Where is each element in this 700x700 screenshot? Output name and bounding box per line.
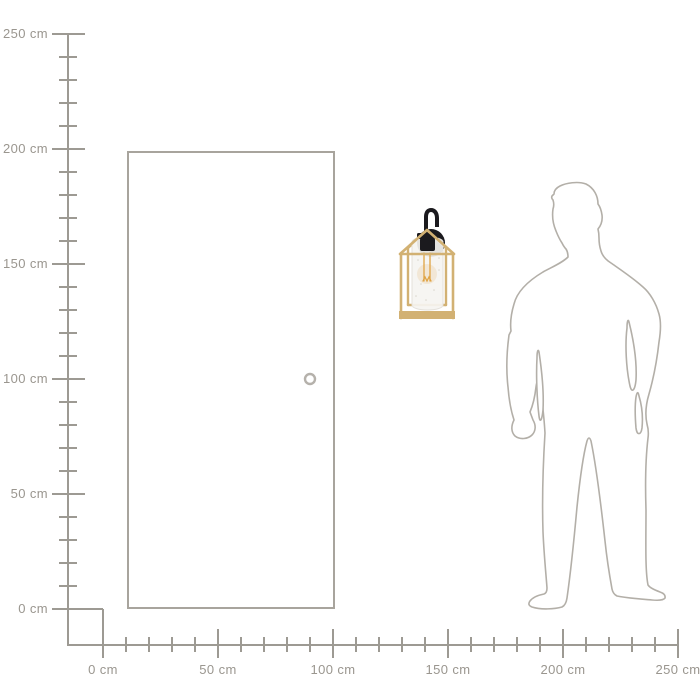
lamp-hook-arm: [424, 208, 439, 232]
vertical-label-0cm: 0 cm: [0, 600, 48, 618]
horizontal-label-0cm: 0 cm: [68, 661, 138, 679]
door: [128, 152, 334, 608]
vertical-label-100cm: 100 cm: [0, 370, 48, 388]
doorknob-ring: [305, 374, 315, 384]
human-outline: [507, 183, 665, 609]
horizontal-label-150cm: 150 cm: [413, 661, 483, 679]
horizontal-label-250cm: 250 cm: [643, 661, 700, 679]
wall-lantern-lamp: [399, 208, 455, 319]
vertical-label-200cm: 200 cm: [0, 140, 48, 158]
horizontal-label-200cm: 200 cm: [528, 661, 598, 679]
horizontal-label-50cm: 50 cm: [183, 661, 253, 679]
human-silhouette: [507, 183, 665, 609]
vertical-label-150cm: 150 cm: [0, 255, 48, 273]
vertical-label-50cm: 50 cm: [0, 485, 48, 503]
door-outline: [128, 152, 334, 608]
diagram-canvas: [0, 0, 700, 700]
horizontal-major-ticks: [103, 609, 678, 658]
lamp-bottom-band: [399, 311, 455, 319]
size-comparison-diagram: 250 cm 200 cm 150 cm 100 cm 50 cm 0 cm 0…: [0, 0, 700, 700]
vertical-major-ticks: [52, 34, 103, 609]
horizontal-label-100cm: 100 cm: [298, 661, 368, 679]
vertical-label-250cm: 250 cm: [0, 25, 48, 43]
